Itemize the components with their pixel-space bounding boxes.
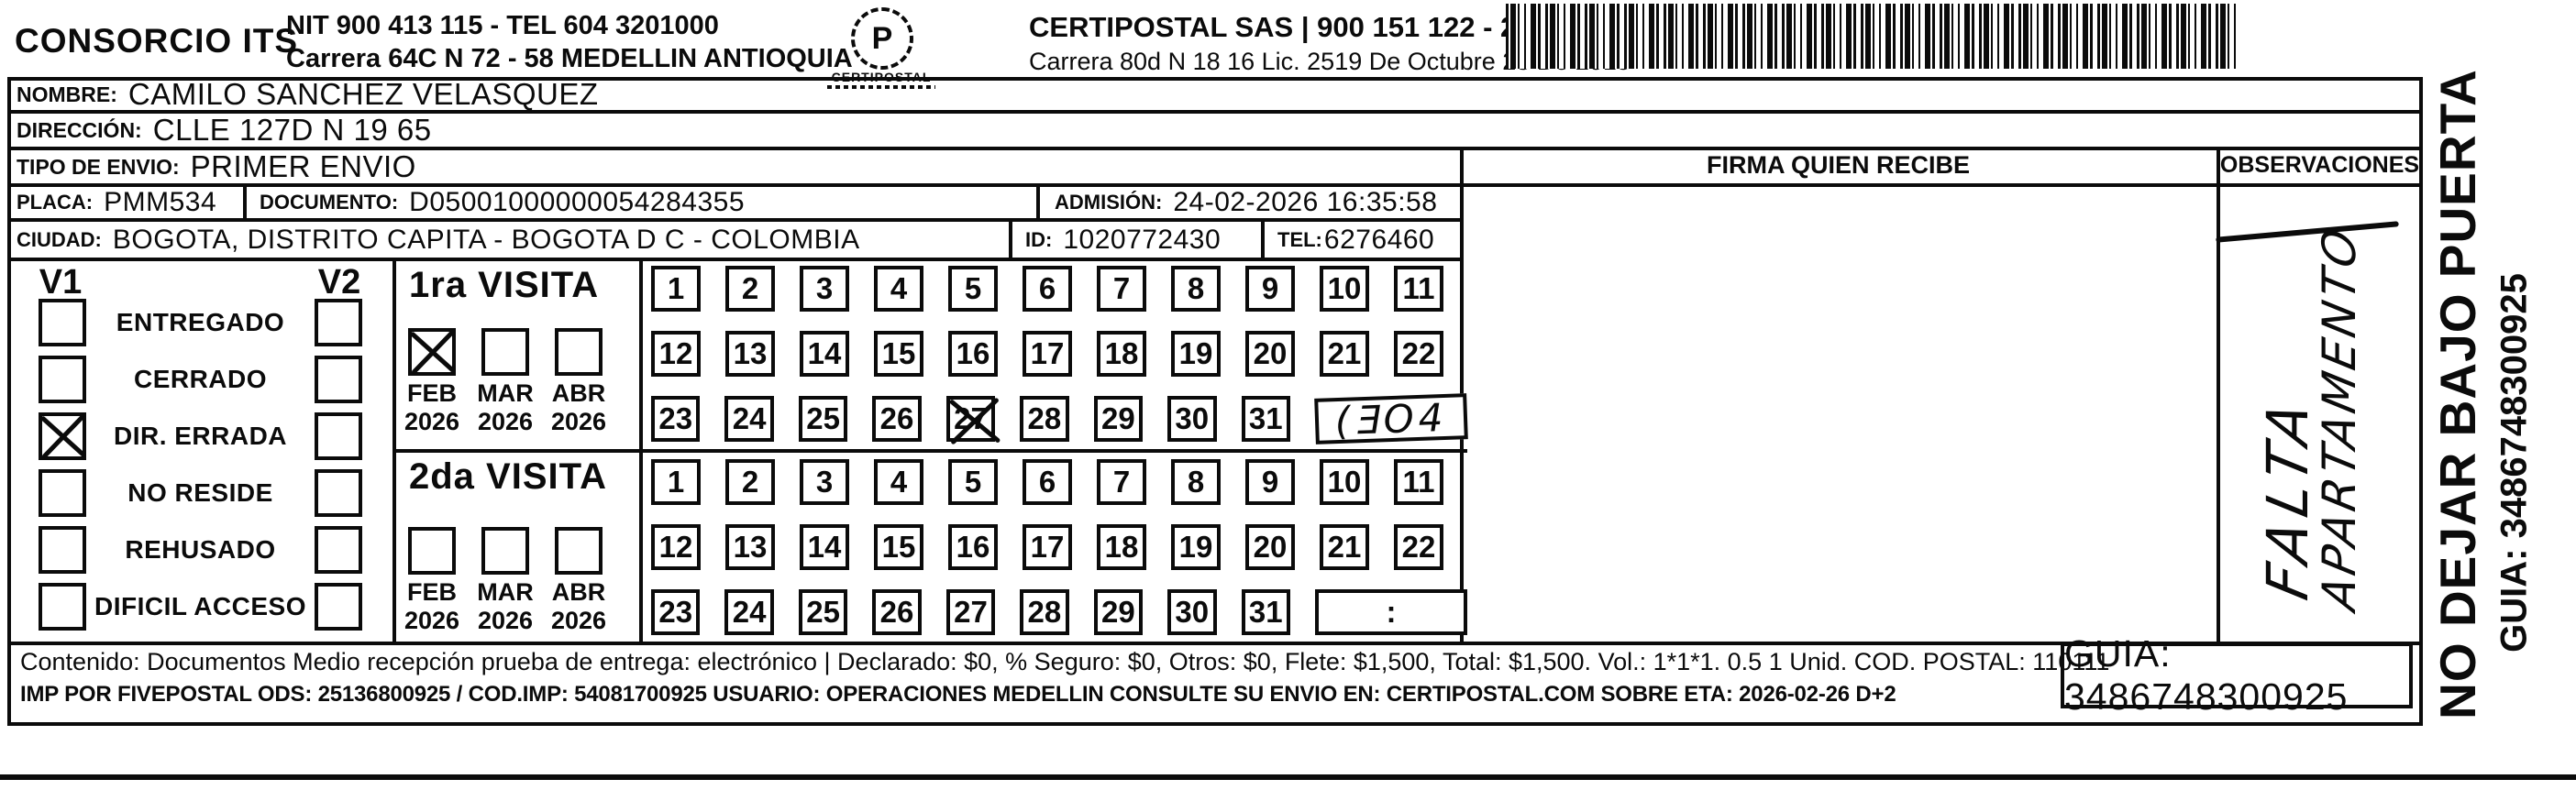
visit1-months-box: 1ra VISITA FEB2026MAR2026ABR2026 (392, 258, 639, 449)
status-rows: ENTREGADOCERRADODIR. ERRADANO RESIDEREHU… (7, 294, 392, 635)
month-group: MAR2026 (481, 328, 530, 436)
v1-checkbox[interactable] (39, 412, 86, 460)
day-cell[interactable]: 22 (1394, 331, 1443, 377)
day-cell[interactable]: 9 (1245, 266, 1295, 312)
month-checkbox[interactable] (555, 527, 603, 575)
day-cell[interactable]: 11 (1394, 266, 1443, 312)
day-cell[interactable]: 23 (651, 589, 700, 635)
day-cell[interactable]: 8 (1171, 266, 1221, 312)
status-row: ENTREGADO (7, 294, 392, 351)
v1-checkbox[interactable] (39, 356, 86, 403)
observaciones-handwriting: FALTA APARTAMENTO (2206, 188, 2417, 637)
day-cell[interactable]: 17 (1023, 524, 1072, 570)
status-row: NO RESIDE (7, 465, 392, 521)
status-label: ENTREGADO (86, 308, 315, 337)
v1-checkbox[interactable] (39, 526, 86, 574)
tipo-envio-row: TIPO DE ENVIO: PRIMER ENVIO (7, 150, 416, 183)
admision-value: 24-02-2026 16:35:58 (1173, 187, 1437, 218)
day-cell[interactable]: 24 (724, 589, 773, 635)
divider-documento-admision (1036, 183, 1040, 222)
day-cell[interactable]: 10 (1320, 266, 1369, 312)
day-row: 1213141516171819202122 (651, 524, 1467, 570)
month-checkbox[interactable] (481, 328, 529, 376)
day-cell[interactable]: 10 (1320, 459, 1369, 505)
month-checkbox[interactable] (555, 328, 603, 376)
day-cell[interactable]: 29 (1094, 589, 1143, 635)
v2-checkbox[interactable] (315, 526, 362, 574)
ciudad-label: CIUDAD: (17, 228, 102, 252)
month-year: 2026 (478, 408, 533, 436)
day-cell[interactable]: 2 (725, 459, 775, 505)
rule-under-placa (7, 218, 1464, 222)
tel-label: TEL: (1277, 228, 1322, 252)
status-label: DIR. ERRADA (86, 422, 315, 451)
documento-value: D05001000000054284355 (409, 187, 745, 218)
visit2-months-box: 2da VISITA FEB2026MAR2026ABR2026 (392, 449, 639, 642)
day-cell[interactable]: 13 (725, 331, 775, 377)
v2-checkbox[interactable] (315, 299, 362, 346)
day-cell[interactable]: 28 (1020, 589, 1068, 635)
day-row: 1234567891011 (651, 266, 1467, 312)
day-cell[interactable]: 5 (948, 266, 998, 312)
v1-checkbox[interactable] (39, 583, 86, 631)
day-cell[interactable]: 15 (874, 331, 923, 377)
company-address-line: Carrera 64C N 72 - 58 MEDELLIN ANTIOQUIA (286, 44, 853, 74)
id-value: 1020772430 (1063, 225, 1221, 256)
status-row: REHUSADO (7, 521, 392, 578)
month-name: FEB (407, 578, 457, 607)
day-cell[interactable]: 14 (800, 331, 849, 377)
day-row: 1234567891011 (651, 459, 1467, 505)
v2-checkbox[interactable] (315, 412, 362, 460)
status-label: DIFICIL ACCESO (86, 592, 315, 621)
time-scribble-cell[interactable]: (ƎO4 (1314, 393, 1468, 444)
day-cell[interactable]: 22 (1394, 524, 1443, 570)
nombre-value: CAMILO SANCHEZ VELASQUEZ (128, 77, 599, 112)
handwriting-line2: APARTAMENTO (2315, 222, 2363, 614)
day-cell[interactable]: 12 (651, 331, 701, 377)
placa-label: PLACA: (17, 191, 93, 214)
certipostal-logo-icon: P (851, 7, 913, 70)
day-cell[interactable]: 19 (1171, 331, 1221, 377)
day-cell[interactable]: 1 (651, 266, 701, 312)
status-box: V1 V2 ENTREGADOCERRADODIR. ERRADANO RESI… (7, 258, 392, 642)
month-group: ABR2026 (554, 328, 603, 436)
v1-checkbox[interactable] (39, 299, 86, 346)
day-cell[interactable]: 23 (651, 396, 700, 442)
day-cell[interactable]: 18 (1097, 331, 1146, 377)
day-cell[interactable]: 16 (948, 524, 998, 570)
v2-checkbox[interactable] (315, 356, 362, 403)
visit-months: FEB2026MAR2026ABR2026 (392, 328, 639, 436)
day-cell[interactable]: 31 (1242, 396, 1290, 442)
status-label: CERRADO (86, 365, 315, 394)
visit-months: FEB2026MAR2026ABR2026 (392, 527, 639, 635)
day-cell[interactable]: 18 (1097, 524, 1146, 570)
ciudad-cell: CIUDAD: BOGOTA, DISTRITO CAPITA - BOGOTA… (7, 224, 860, 257)
status-label: REHUSADO (86, 535, 315, 565)
bottom-rule (0, 774, 2576, 780)
status-header: V1 V2 (7, 258, 392, 294)
day-grid: 1234567891011121314151617181920212223242… (639, 258, 1467, 449)
day-cell[interactable]: 6 (1023, 459, 1072, 505)
v1-header: V1 (35, 263, 86, 294)
admision-label: ADMISIÓN: (1055, 191, 1162, 214)
nombre-row: NOMBRE: CAMILO SANCHEZ VELASQUEZ (7, 79, 599, 110)
month-group: FEB2026 (407, 527, 457, 635)
day-cell[interactable]: 17 (1023, 331, 1072, 377)
day-cell[interactable]: 19 (1171, 524, 1221, 570)
documento-cell: DOCUMENTO: D05001000000054284355 (250, 187, 745, 218)
day-cell[interactable]: 26 (872, 589, 921, 635)
day-cell[interactable]: 13 (725, 524, 775, 570)
month-year: 2026 (551, 408, 606, 436)
day-cell[interactable]: 27 (946, 589, 995, 635)
day-cell[interactable]: 21 (1320, 331, 1369, 377)
shipping-label-scan: CONSORCIO ITS NIT 900 413 115 - TEL 604 … (0, 0, 2576, 790)
footer-content-line: Contenido: Documentos Medio recepción pr… (20, 648, 2109, 676)
divider-placa-documento (243, 183, 247, 222)
tipo-envio-value: PRIMER ENVIO (191, 149, 416, 184)
day-cell[interactable]: 20 (1245, 524, 1295, 570)
id-cell: ID: 1020772430 (1016, 224, 1221, 257)
footer-imp-line: IMP POR FIVEPOSTAL ODS: 25136800925 / CO… (20, 682, 1896, 708)
month-group: MAR2026 (481, 527, 530, 635)
day-row: 232425262728293031(ƎO4 (651, 396, 1467, 442)
day-cell[interactable]: 20 (1245, 331, 1295, 377)
day-cell[interactable]: 28 (1020, 396, 1068, 442)
placa-cell: PLACA: PMM534 (7, 187, 216, 218)
time-cell[interactable]: : (1315, 589, 1467, 635)
month-group: ABR2026 (554, 527, 603, 635)
observaciones-header: OBSERVACIONES (2217, 147, 2423, 183)
day-cell[interactable]: 25 (799, 589, 847, 635)
tipo-envio-label: TIPO DE ENVIO: (17, 155, 180, 180)
handwriting-line1: FALTA (2261, 211, 2315, 605)
direccion-label: DIRECCIÓN: (17, 118, 142, 143)
direccion-row: DIRECCIÓN: CLLE 127D N 19 65 (7, 114, 432, 147)
status-row: CERRADO (7, 351, 392, 408)
company-nit-line: NIT 900 413 115 - TEL 604 3201000 (286, 11, 719, 41)
day-cell[interactable]: 31 (1242, 589, 1290, 635)
day-cell[interactable]: 2 (725, 266, 775, 312)
visit1-title: 1ra VISITA (392, 258, 639, 306)
month-year: 2026 (404, 607, 459, 635)
day-cell[interactable]: 24 (724, 396, 773, 442)
documento-label: DOCUMENTO: (260, 191, 398, 214)
day-row: 232425262728293031: (651, 589, 1467, 635)
day-grid: 1234567891011121314151617181920212223242… (639, 449, 1467, 642)
day-cell[interactable]: 8 (1171, 459, 1221, 505)
v2-checkbox[interactable] (315, 469, 362, 517)
day-cell[interactable]: 14 (800, 524, 849, 570)
day-cell[interactable]: 6 (1023, 266, 1072, 312)
day-cell[interactable]: 4 (874, 266, 923, 312)
month-year: 2026 (404, 408, 459, 436)
month-year: 2026 (478, 607, 533, 635)
divider-ciudad-id (1009, 218, 1012, 261)
admision-cell: ADMISIÓN: 24-02-2026 16:35:58 (1045, 187, 1437, 218)
v1-checkbox[interactable] (39, 469, 86, 517)
day-cell[interactable]: 1 (651, 459, 701, 505)
day-cell[interactable]: 3 (800, 266, 849, 312)
month-name: FEB (407, 379, 457, 408)
day-cell[interactable]: 27 (946, 396, 995, 442)
month-name: ABR (552, 578, 606, 607)
nombre-label: NOMBRE: (17, 82, 117, 107)
side-guia-text: GUIA: 3486748300925 (2494, 273, 2536, 653)
month-name: MAR (477, 578, 534, 607)
month-year: 2026 (551, 607, 606, 635)
guia-number-box: GUIA: 3486748300925 (2061, 642, 2413, 708)
tel-value: 6276460 (1324, 225, 1434, 256)
day-cell[interactable]: 26 (872, 396, 921, 442)
day-cell[interactable]: 30 (1167, 589, 1216, 635)
day-cell[interactable]: 3 (800, 459, 849, 505)
month-name: MAR (477, 379, 534, 408)
day-cell[interactable]: 25 (799, 396, 847, 442)
day-cell[interactable]: 21 (1320, 524, 1369, 570)
tel-cell: TEL: 6276460 (1268, 224, 1434, 257)
day-cell[interactable]: 7 (1097, 266, 1146, 312)
day-cell[interactable]: 9 (1245, 459, 1295, 505)
company-name: CONSORCIO ITS (15, 22, 298, 60)
id-label: ID: (1025, 228, 1052, 252)
day-cell[interactable]: 30 (1167, 396, 1216, 442)
status-label: NO RESIDE (86, 478, 315, 508)
month-name: ABR (552, 379, 606, 408)
ciudad-value: BOGOTA, DISTRITO CAPITA - BOGOTA D C - C… (113, 225, 860, 256)
day-cell[interactable]: 5 (948, 459, 998, 505)
month-checkbox[interactable] (408, 527, 456, 575)
logo-glyph: P (872, 21, 893, 57)
month-checkbox[interactable] (481, 527, 529, 575)
day-cell[interactable]: 15 (874, 524, 923, 570)
side-warning-text: NO DEJAR BAJO PUERTA (2428, 69, 2487, 719)
status-row: DIFICIL ACCESO (7, 578, 392, 635)
v2-header: V2 (314, 263, 365, 294)
month-checkbox[interactable] (408, 328, 456, 376)
status-row: DIR. ERRADA (7, 408, 392, 465)
day-cell[interactable]: 7 (1097, 459, 1146, 505)
direccion-value: CLLE 127D N 19 65 (153, 113, 432, 148)
day-cell[interactable]: 4 (874, 459, 923, 505)
placa-value: PMM534 (104, 187, 216, 218)
tracking-barcode (1506, 4, 2238, 69)
v2-checkbox[interactable] (315, 583, 362, 631)
day-cell[interactable]: 12 (651, 524, 701, 570)
day-cell[interactable]: 11 (1394, 459, 1443, 505)
day-row: 1213141516171819202122 (651, 331, 1467, 377)
visit2-title: 2da VISITA (392, 449, 639, 498)
day-cell[interactable]: 16 (948, 331, 998, 377)
day-cell[interactable]: 29 (1094, 396, 1143, 442)
month-group: FEB2026 (407, 328, 457, 436)
firma-header: FIRMA QUIEN RECIBE (1460, 147, 2217, 183)
firma-signature-area (1460, 183, 2217, 642)
certipostal-company-line: CERTIPOSTAL SAS | 900 151 122 - 2 (1029, 11, 1516, 44)
divider-id-tel (1261, 218, 1265, 261)
